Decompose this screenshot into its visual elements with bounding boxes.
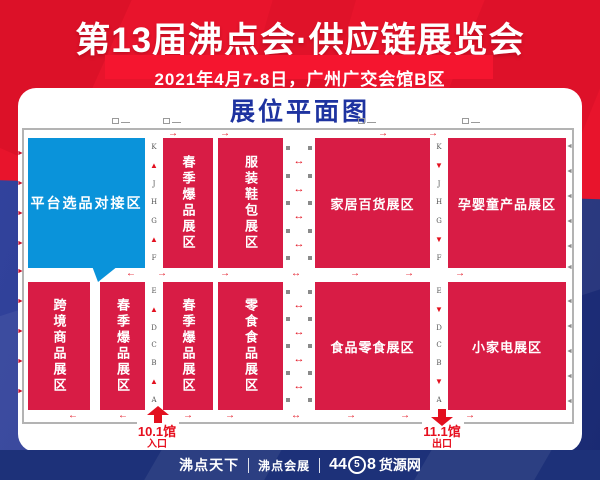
logo-5-circle: 5: [348, 456, 366, 474]
door-marker-left: ►: [17, 240, 24, 247]
aisle-letter: E: [436, 288, 441, 295]
booth-dot: [308, 146, 312, 150]
aisle-letter: C: [436, 342, 441, 349]
zone-label: 春季爆品展区: [182, 155, 195, 251]
arrow-both-icon: ↔: [294, 239, 305, 250]
zone-label: 食品零食展区: [330, 337, 414, 356]
logo-44: 44: [329, 456, 347, 474]
aisle-letter: C: [151, 342, 156, 349]
booth-dot: [286, 201, 290, 205]
booth-dot: [286, 256, 290, 260]
arrow-both-icon: ↔: [294, 381, 305, 392]
footer-streak: [403, 450, 558, 480]
arrow-right-icon: →: [455, 269, 465, 279]
wall-annotation-line: [471, 122, 480, 123]
door-marker-right: ◄: [566, 348, 573, 355]
booth-dot: [308, 344, 312, 348]
arrow-down-icon: ▼: [435, 236, 443, 244]
zone-snack-food: 零食食品展区: [218, 282, 283, 410]
wall-annotation-box: [112, 118, 119, 124]
banner: 第13届沸点会·供应链展览会 2021年4月7-8日，广州广交会馆B区: [0, 0, 600, 88]
arrow-right-icon: →: [378, 129, 388, 139]
aisle-letter: G: [436, 218, 442, 225]
logo-feidian-huizhan: 沸点会展: [258, 457, 310, 474]
aisle-letter: H: [151, 199, 157, 206]
zone-label: 春季爆品展区: [182, 298, 195, 394]
door-marker-right: ◄: [566, 264, 573, 271]
event-date-venue: 2021年4月7-8日，广州广交会馆B区: [0, 65, 600, 90]
arrow-up-icon: ▲: [150, 306, 158, 314]
logo-8: 8: [367, 456, 376, 474]
arrow-both-icon: ↔: [294, 354, 305, 365]
door-marker-right: ◄: [566, 218, 573, 225]
door-marker-right: ◄: [566, 323, 573, 330]
arrow-up-icon: ▲: [150, 378, 158, 386]
door-marker-left: ►: [17, 388, 24, 395]
wall-annotation-line: [172, 122, 181, 123]
entrance-label: 10.1馆 入口: [122, 425, 192, 450]
zone-apparel-shoes-bags: 服装鞋包展区: [218, 138, 283, 268]
exit-hall: 11.1馆: [407, 425, 477, 439]
exit-label: 11.1馆 出口: [407, 425, 477, 450]
aisle-letter: B: [151, 360, 156, 367]
booth-dots: [283, 146, 315, 150]
aisle-letter: H: [436, 199, 442, 206]
door-marker-left: ►: [17, 180, 24, 187]
booth-dots: [283, 317, 315, 321]
aisle-letter: J: [153, 181, 156, 188]
aisle-letter: D: [436, 325, 442, 332]
arrow-down-icon: ▼: [435, 306, 443, 314]
aisle-letter: J: [438, 181, 441, 188]
arrow-right-icon: →: [346, 411, 356, 421]
zone-label: 春季爆品展区: [116, 298, 129, 394]
arrow-both-icon: ↔: [294, 300, 305, 311]
arrow-right-icon: →: [400, 411, 410, 421]
door-marker-left: ►: [17, 268, 24, 275]
arrow-both-icon: ↔: [294, 327, 305, 338]
booth-dot: [286, 146, 290, 150]
booth-dot: [308, 256, 312, 260]
zone-food-snack: 食品零食展区: [315, 282, 430, 410]
arrow-right-icon: →: [350, 269, 360, 279]
aisle-letter: F: [437, 255, 442, 262]
logo-feidian-tianxia: 沸点天下: [179, 455, 239, 475]
aisle-letter: G: [151, 218, 157, 225]
booth-dot: [308, 317, 312, 321]
wall-annotation: [462, 118, 480, 124]
door-marker-right: ◄: [566, 168, 573, 175]
zone-platform-selection: 平台选品对接区: [28, 138, 145, 268]
booth-dot: [286, 398, 290, 402]
booth-dots: [283, 398, 315, 402]
booth-dot: [308, 229, 312, 233]
zone-label: 零食食品展区: [244, 298, 257, 394]
zone-spring-hot-bottom-right: 春季爆品展区: [163, 282, 213, 410]
booth-dot: [308, 201, 312, 205]
door-marker-left: ►: [17, 298, 24, 305]
door-marker-left: ►: [17, 150, 24, 157]
aisle-letter: E: [151, 288, 156, 295]
arrow-down-icon: ▼: [435, 378, 443, 386]
booth-dot: [286, 371, 290, 375]
arrow-right-icon: →: [225, 411, 235, 421]
arrow-up-icon: ▲: [150, 236, 158, 244]
poster: 第13届沸点会·供应链展览会 2021年4月7-8日，广州广交会馆B区 展位平面…: [0, 0, 600, 480]
aisle-top-right: K ▼ J H G ▼ F: [430, 138, 448, 268]
footer-bar: 沸点天下 沸点会展 44 5 8 货源网: [0, 450, 600, 480]
booth-dot: [308, 398, 312, 402]
entrance-hall: 10.1馆: [122, 425, 192, 439]
zone-label: 跨境商品展区: [53, 298, 66, 394]
zone-household-goods: 家居百货展区: [315, 138, 430, 268]
aisle-letter: A: [436, 397, 441, 404]
corridor-top: ↔↔↔↔: [283, 138, 315, 268]
booth-dot: [308, 174, 312, 178]
callout-tail: [92, 266, 118, 282]
arrow-up-icon: ▲: [150, 162, 158, 170]
arrow-right-icon: →: [404, 269, 414, 279]
zone-label: 服装鞋包展区: [244, 155, 257, 251]
aisle-bottom-left: E ▲ D C B ▲ A: [145, 282, 163, 410]
booth-dots: [283, 290, 315, 294]
arrow-down-icon: ▼: [435, 162, 443, 170]
arrow-right-icon: →: [465, 411, 475, 421]
arrow-right-icon: →: [220, 269, 230, 279]
booth-dots: [283, 371, 315, 375]
door-marker-left: ►: [17, 328, 24, 335]
booth-dots: [283, 174, 315, 178]
arrow-right-icon: →: [168, 129, 178, 139]
door-marker-right: ◄: [566, 143, 573, 150]
arrow-right-icon: →: [428, 129, 438, 139]
arrow-left-icon: ←: [126, 269, 136, 279]
arrow-left-icon: ←: [118, 411, 128, 421]
arrow-both-icon: ↔: [294, 156, 305, 167]
booth-dot: [308, 371, 312, 375]
booth-dot: [286, 229, 290, 233]
entrance-door: 入口: [122, 439, 192, 450]
booth-dots: [283, 256, 315, 260]
booth-dots: [283, 344, 315, 348]
aisle-bottom-right: E ▼ D C B ▼ A: [430, 282, 448, 410]
corridor-bottom: ↔↔↔↔: [283, 282, 315, 410]
aisle-letter: A: [151, 397, 156, 404]
aisle-top-left: K ▲ J H G ▲ F: [145, 138, 163, 268]
zone-small-appliances: 小家电展区: [448, 282, 566, 410]
wall-annotation-box: [358, 118, 365, 124]
wall-annotation: [112, 118, 130, 124]
wall-annotation: [358, 118, 376, 124]
booth-dot: [286, 174, 290, 178]
wall-annotation: [163, 118, 181, 124]
arrow-right-icon: →: [157, 269, 167, 279]
arrow-both-icon: ↔: [294, 211, 305, 222]
wall-annotation-box: [462, 118, 469, 124]
arrow-left-icon: ←: [68, 411, 78, 421]
entrance-arrow-icon: [147, 406, 169, 423]
door-marker-right: ◄: [566, 398, 573, 405]
door-marker-left: ►: [17, 210, 24, 217]
wall-annotation-box: [163, 118, 170, 124]
zone-crossborder-goods: 跨境商品展区: [28, 282, 90, 410]
aisle-letter: K: [151, 144, 156, 151]
arrow-both-icon: ↔: [291, 411, 301, 421]
arrow-right-icon: →: [183, 411, 193, 421]
aisle-letter: F: [152, 255, 157, 262]
wall-annotation-line: [121, 122, 130, 123]
zone-label: 平台选品对接区: [31, 193, 143, 213]
booth-dots: [283, 229, 315, 233]
floorplan-title: 展位平面图: [0, 92, 600, 128]
arrow-both-icon: ↔: [294, 184, 305, 195]
booth-dot: [286, 290, 290, 294]
zone-label: 小家电展区: [472, 337, 542, 356]
aisle-letter: B: [436, 360, 441, 367]
logo-4458-huoyuan: 44 5 8 货源网: [329, 455, 421, 475]
exit-door: 出口: [407, 439, 477, 450]
arrow-both-icon: ↔: [291, 269, 301, 279]
zone-label: 孕婴童产品展区: [458, 194, 556, 213]
arrow-right-icon: →: [220, 129, 230, 139]
logo-divider: [319, 458, 320, 473]
door-marker-right: ◄: [566, 298, 573, 305]
booth-dots: [283, 201, 315, 205]
booth-dot: [286, 344, 290, 348]
booth-dot: [286, 317, 290, 321]
aisle-letter: K: [436, 144, 441, 151]
zone-spring-hot-bottom-left: 春季爆品展区: [100, 282, 145, 410]
wall-annotation-line: [367, 122, 376, 123]
logo-huoyuan: 货源网: [379, 455, 421, 475]
booth-dot: [308, 290, 312, 294]
aisle-letter: D: [151, 325, 157, 332]
zone-spring-hot-top: 春季爆品展区: [163, 138, 213, 268]
door-marker-left: ►: [17, 358, 24, 365]
door-marker-right: ◄: [566, 193, 573, 200]
zone-maternity-baby: 孕婴童产品展区: [448, 138, 566, 268]
door-marker-right: ◄: [566, 243, 573, 250]
door-marker-right: ◄: [566, 373, 573, 380]
zone-label: 家居百货展区: [330, 194, 414, 213]
